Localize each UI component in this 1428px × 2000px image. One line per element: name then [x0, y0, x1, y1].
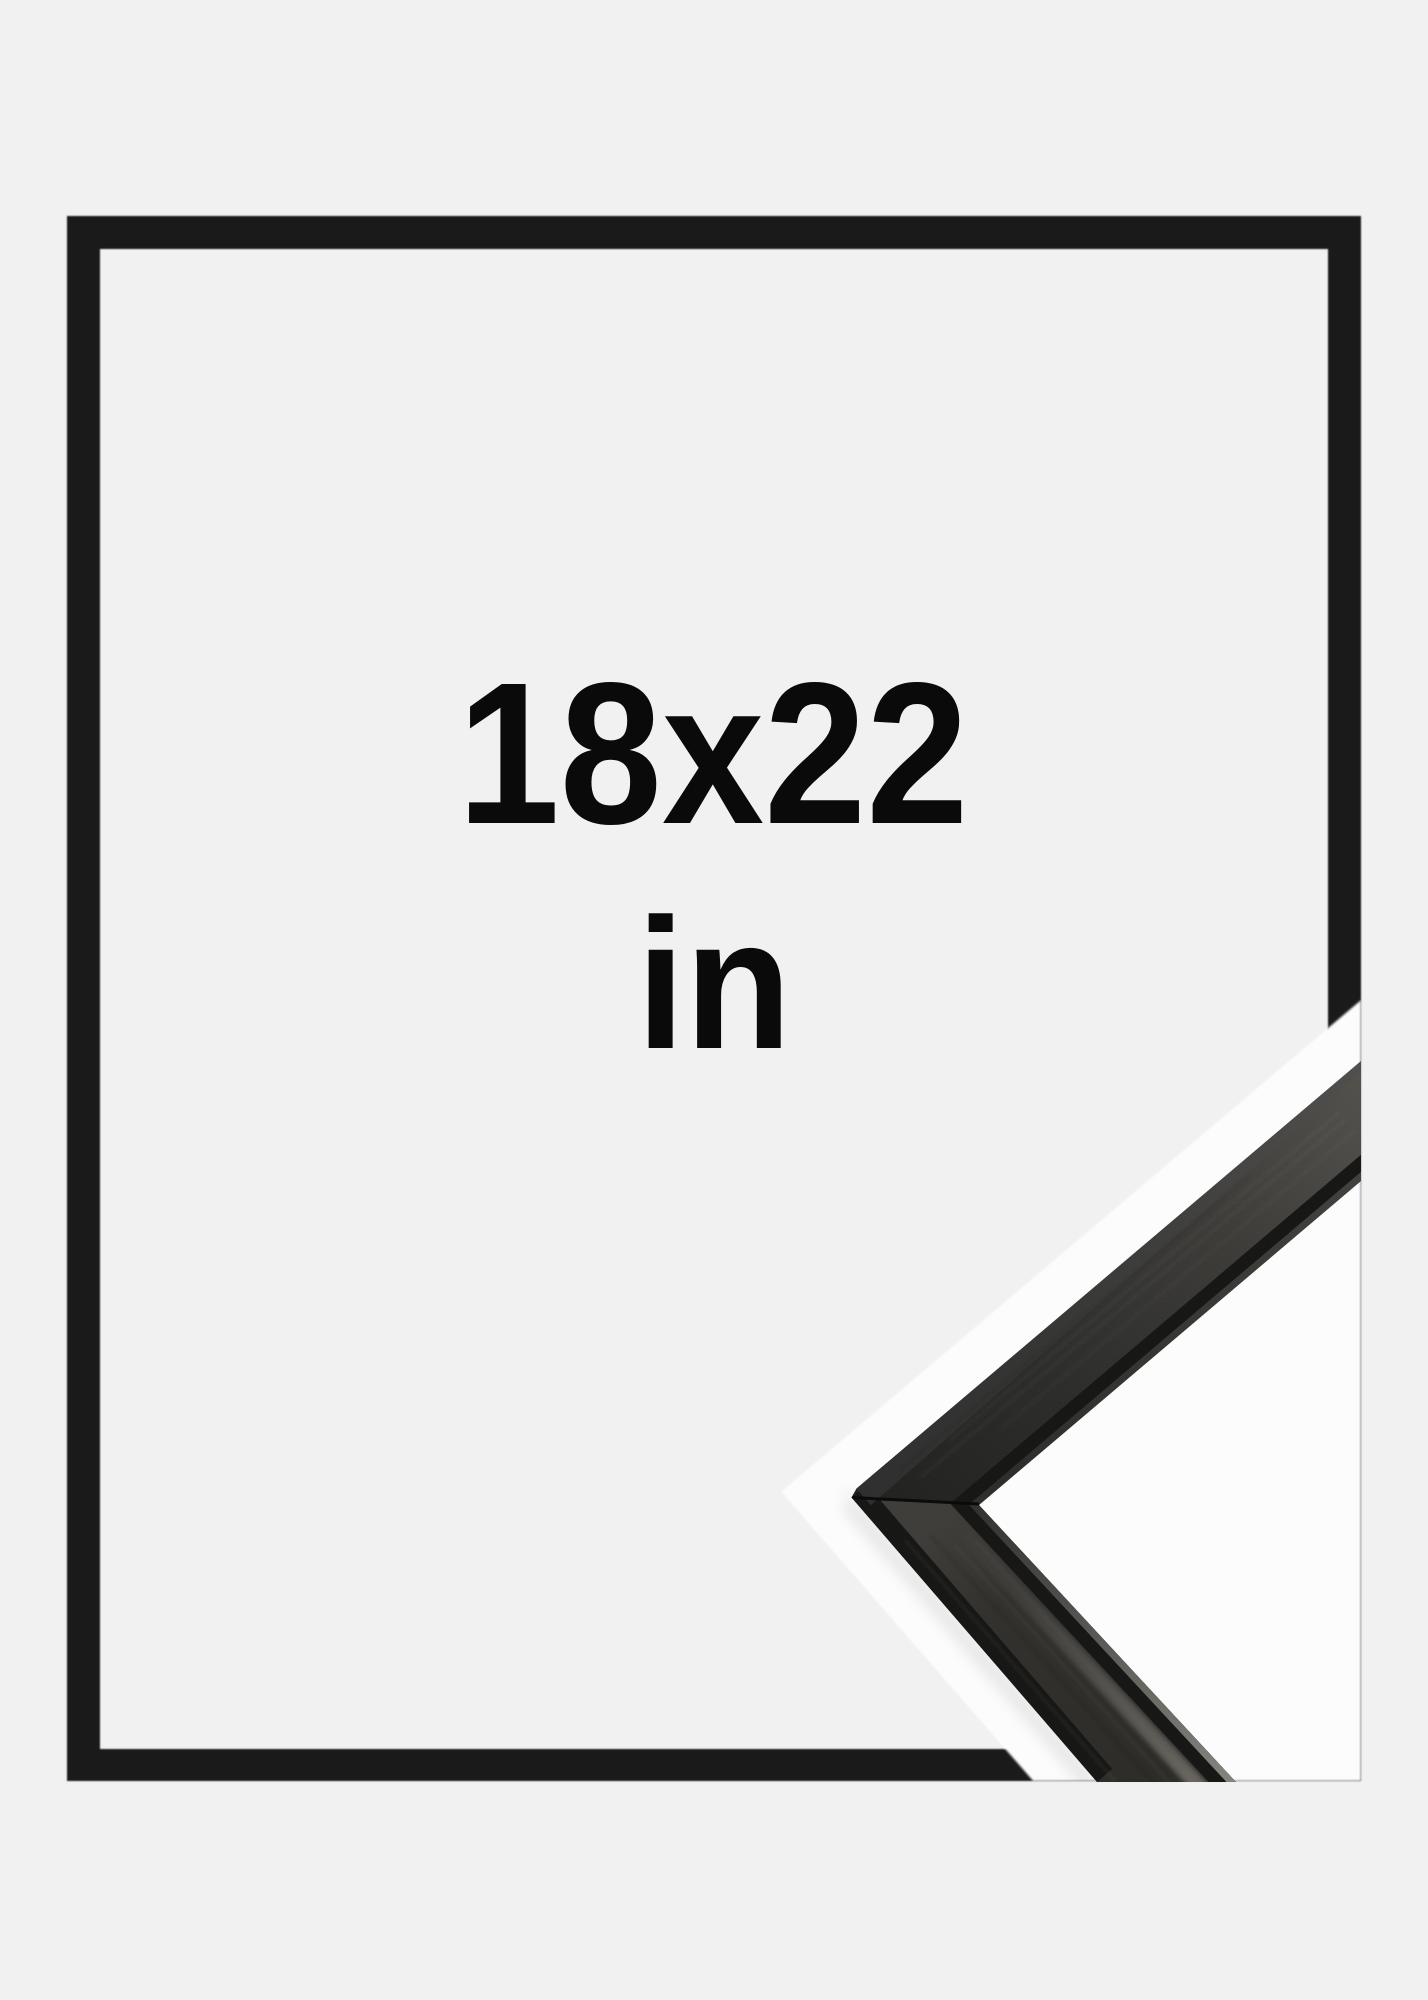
svg-text:in: in: [637, 881, 792, 1088]
svg-text:18x22: 18x22: [458, 640, 969, 866]
